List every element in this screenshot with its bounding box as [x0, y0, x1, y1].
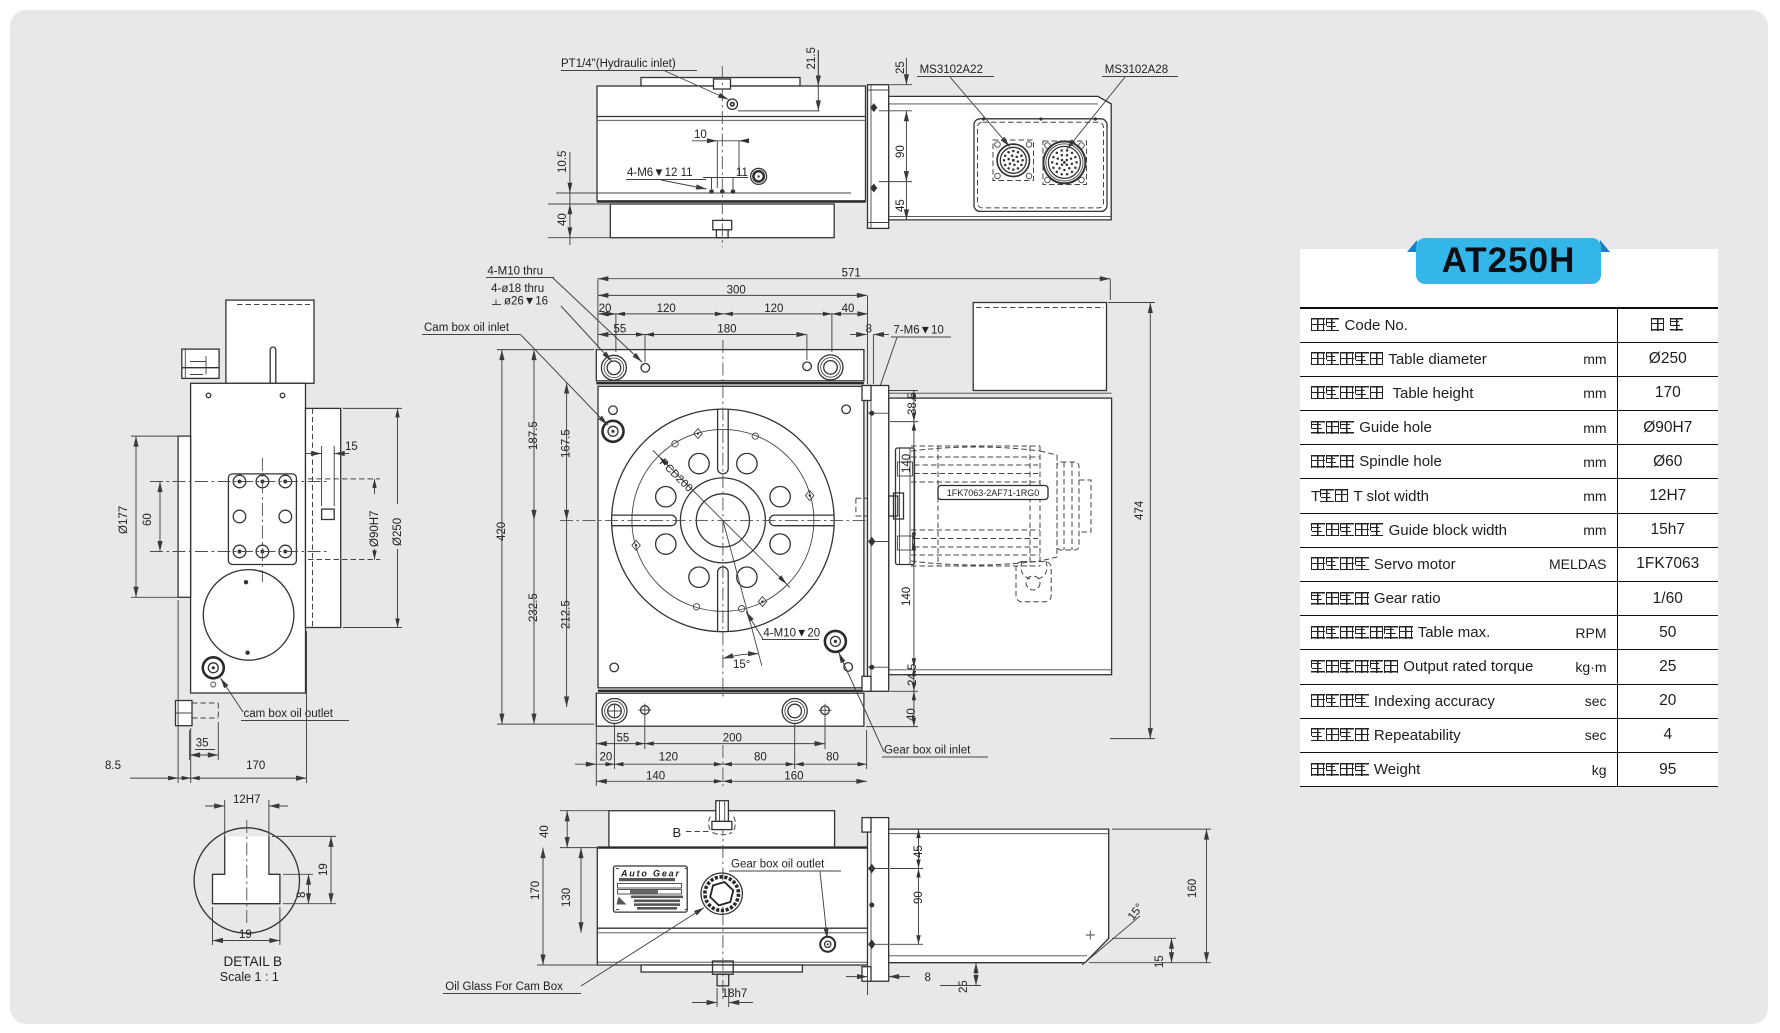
- svg-text:170: 170: [246, 760, 265, 772]
- svg-text:cam box oil outlet: cam box oil outlet: [244, 708, 334, 720]
- svg-text:90: 90: [895, 145, 907, 158]
- svg-text:170: 170: [530, 881, 542, 900]
- svg-text:Gear box oil outlet: Gear box oil outlet: [731, 859, 825, 871]
- svg-text:8.5: 8.5: [105, 760, 121, 772]
- svg-text:571: 571: [842, 268, 861, 280]
- svg-text:12H7: 12H7: [233, 794, 261, 806]
- svg-text:Cam box oil inlet: Cam box oil inlet: [424, 322, 510, 334]
- svg-text:4-ø18 thru: 4-ø18 thru: [491, 283, 544, 295]
- svg-text:19: 19: [239, 929, 252, 941]
- svg-text:130: 130: [561, 888, 573, 907]
- svg-text:200: 200: [723, 733, 742, 745]
- svg-text:60: 60: [142, 513, 154, 526]
- svg-text:B: B: [673, 825, 682, 840]
- svg-text:8: 8: [925, 972, 931, 984]
- svg-text:8: 8: [866, 324, 872, 336]
- svg-text:4-M10 thru: 4-M10 thru: [487, 266, 543, 278]
- svg-text:45: 45: [913, 845, 925, 858]
- svg-text:15°: 15°: [733, 659, 750, 671]
- svg-text:15: 15: [1154, 955, 1166, 968]
- svg-text:140: 140: [646, 770, 665, 782]
- svg-text:Ø90H7: Ø90H7: [369, 511, 381, 547]
- svg-text:120: 120: [657, 303, 676, 315]
- svg-text:35: 35: [196, 738, 209, 750]
- svg-text:Auto Gear: Auto Gear: [620, 869, 679, 879]
- svg-text:180: 180: [717, 324, 736, 336]
- svg-text:90: 90: [913, 891, 925, 904]
- svg-text:40: 40: [539, 825, 551, 838]
- svg-text:55: 55: [617, 733, 630, 745]
- svg-text:10: 10: [694, 129, 707, 141]
- svg-text:15: 15: [345, 441, 358, 453]
- svg-text:Oil Glass For Cam Box: Oil Glass For Cam Box: [445, 981, 563, 993]
- svg-text:19: 19: [318, 863, 330, 876]
- svg-text:7-M6▼10: 7-M6▼10: [893, 325, 943, 337]
- svg-text:4-M10▼20: 4-M10▼20: [763, 628, 820, 640]
- svg-text:21.5: 21.5: [806, 47, 818, 69]
- svg-text:MS3102A22: MS3102A22: [920, 64, 983, 76]
- svg-text:Gear box oil inlet: Gear box oil inlet: [884, 745, 971, 757]
- svg-text:DETAIL B: DETAIL B: [224, 954, 283, 969]
- svg-text:300: 300: [727, 285, 746, 297]
- svg-text:4-M6▼12 11: 4-M6▼12 11: [627, 167, 693, 179]
- svg-text:Ø250: Ø250: [392, 518, 404, 546]
- svg-text:8: 8: [296, 892, 308, 898]
- svg-text:Ø177: Ø177: [118, 506, 130, 534]
- svg-text:1FK7063-2AF71-1RG0: 1FK7063-2AF71-1RG0: [947, 488, 1040, 498]
- svg-text:140: 140: [901, 587, 913, 606]
- svg-text:80: 80: [826, 752, 839, 764]
- svg-text:20: 20: [600, 752, 613, 764]
- svg-text:120: 120: [764, 303, 783, 315]
- svg-text:40: 40: [906, 708, 918, 721]
- svg-text:120: 120: [659, 752, 678, 764]
- svg-text:Scale 1 : 1: Scale 1 : 1: [220, 970, 279, 984]
- svg-text:80: 80: [754, 752, 767, 764]
- svg-text:40: 40: [557, 213, 569, 226]
- svg-text:160: 160: [784, 770, 803, 782]
- svg-text:55: 55: [614, 324, 627, 336]
- svg-text:15°: 15°: [1126, 902, 1146, 923]
- svg-text:25: 25: [895, 61, 907, 74]
- svg-text:10.5: 10.5: [557, 151, 569, 173]
- svg-text:25: 25: [958, 980, 970, 993]
- svg-text:160: 160: [1187, 879, 1199, 898]
- svg-text:474: 474: [1134, 500, 1146, 520]
- svg-text:45: 45: [895, 199, 907, 212]
- svg-text:18h7: 18h7: [722, 988, 748, 1000]
- svg-text:140: 140: [901, 454, 913, 473]
- svg-text:40: 40: [842, 303, 855, 315]
- svg-text:MS3102A28: MS3102A28: [1105, 64, 1168, 76]
- svg-text:ø26▼16: ø26▼16: [504, 296, 548, 308]
- svg-text:PT1/4"(Hydraulic inlet): PT1/4"(Hydraulic inlet): [561, 58, 676, 70]
